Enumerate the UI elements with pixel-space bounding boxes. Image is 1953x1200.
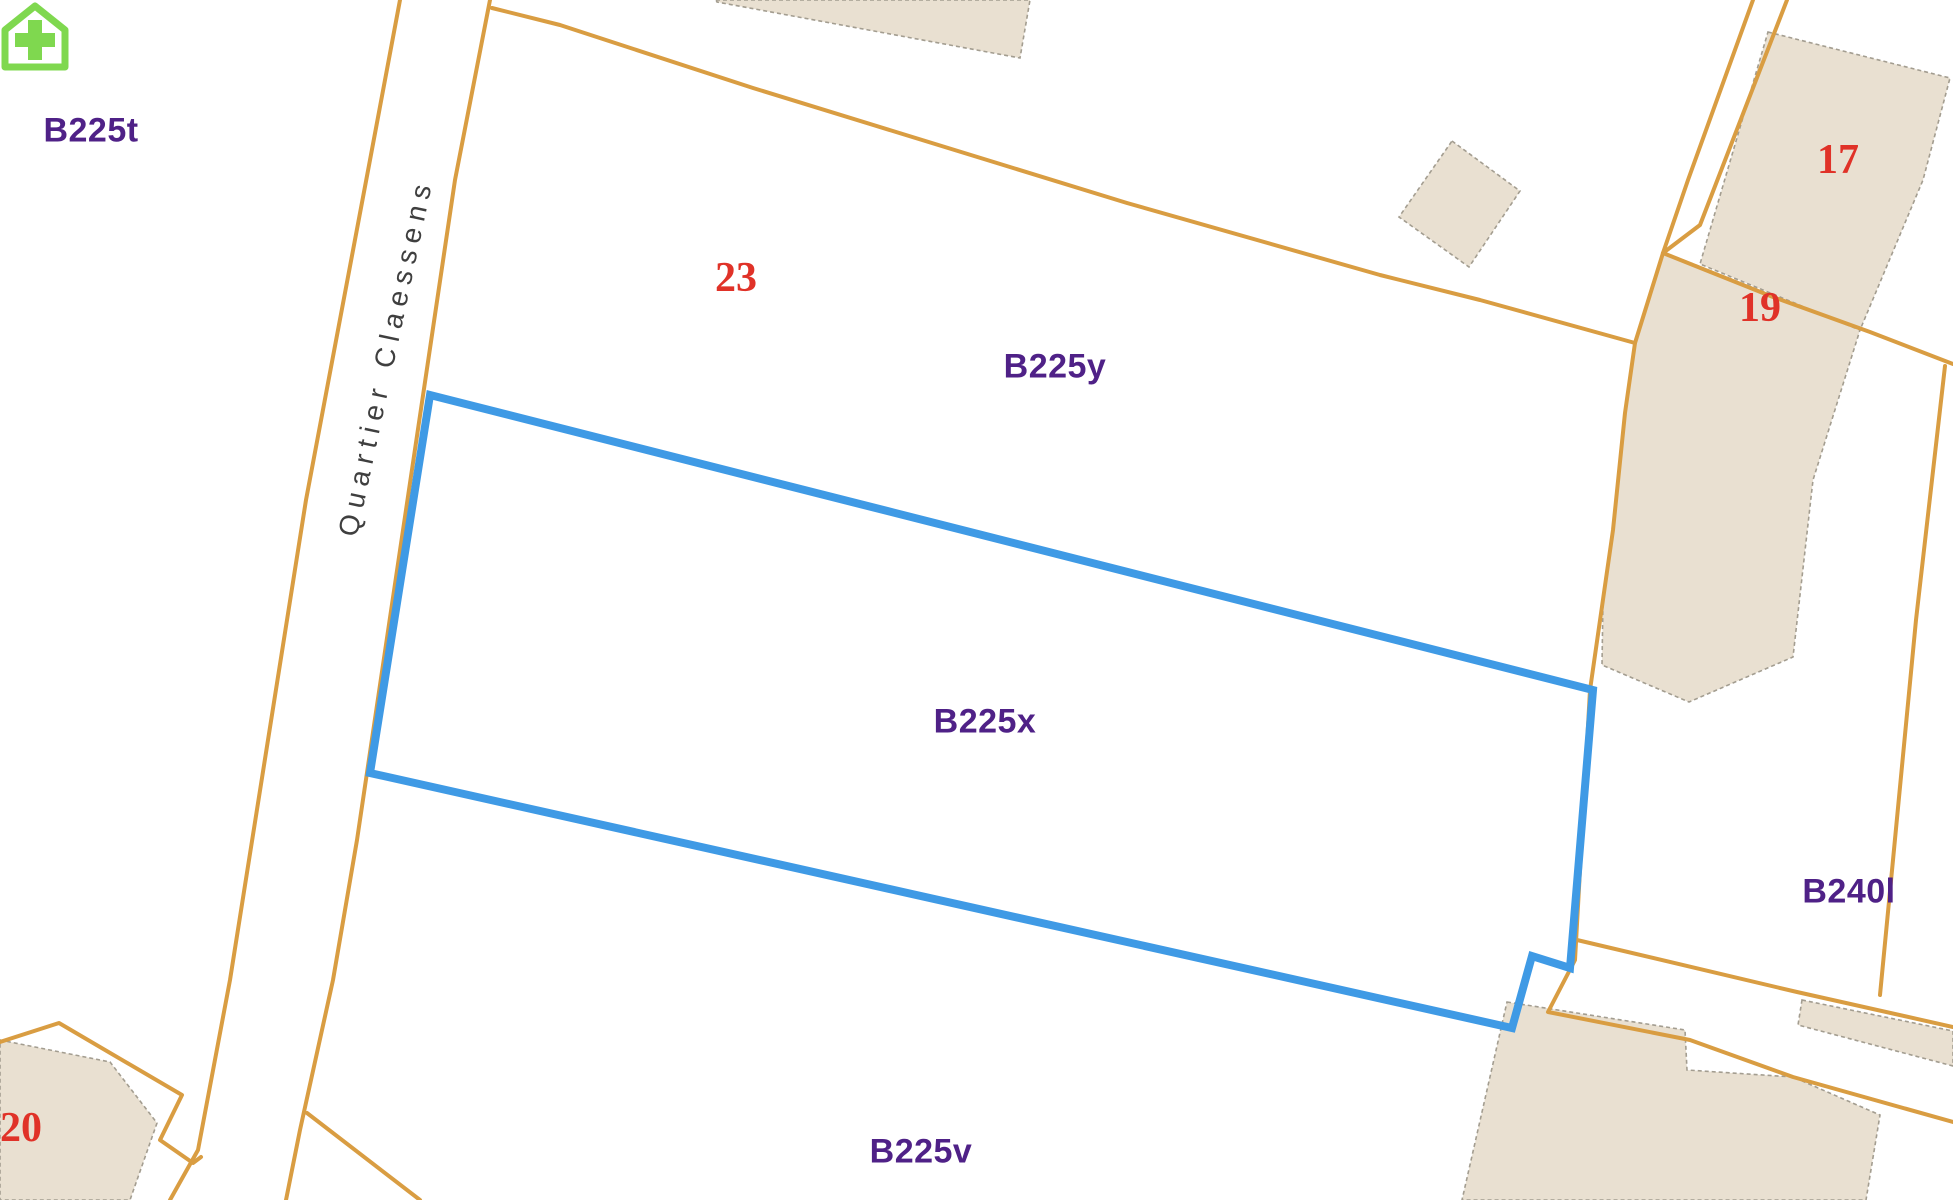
road-left-edge [170, 0, 400, 1200]
building-diamond [1399, 141, 1520, 267]
selected-parcel-outline-B225x[interactable] [370, 395, 1593, 1028]
road-right-edge [286, 0, 490, 1200]
building-bottom-right [1462, 1002, 1880, 1200]
boundary-far-right [1880, 366, 1945, 995]
building-20 [0, 1040, 157, 1200]
cadastral-map-canvas[interactable]: Quartier Claessens B225t B225y B225x B22… [0, 0, 1953, 1200]
boundary-b240l-top [1577, 940, 1953, 1027]
boundary-branch-bottom [307, 1113, 420, 1200]
map-vector-layer [0, 0, 1953, 1200]
building-top-center [716, 0, 1030, 58]
house-plus-icon[interactable] [0, 0, 70, 74]
building-footprints [0, 0, 1953, 1200]
